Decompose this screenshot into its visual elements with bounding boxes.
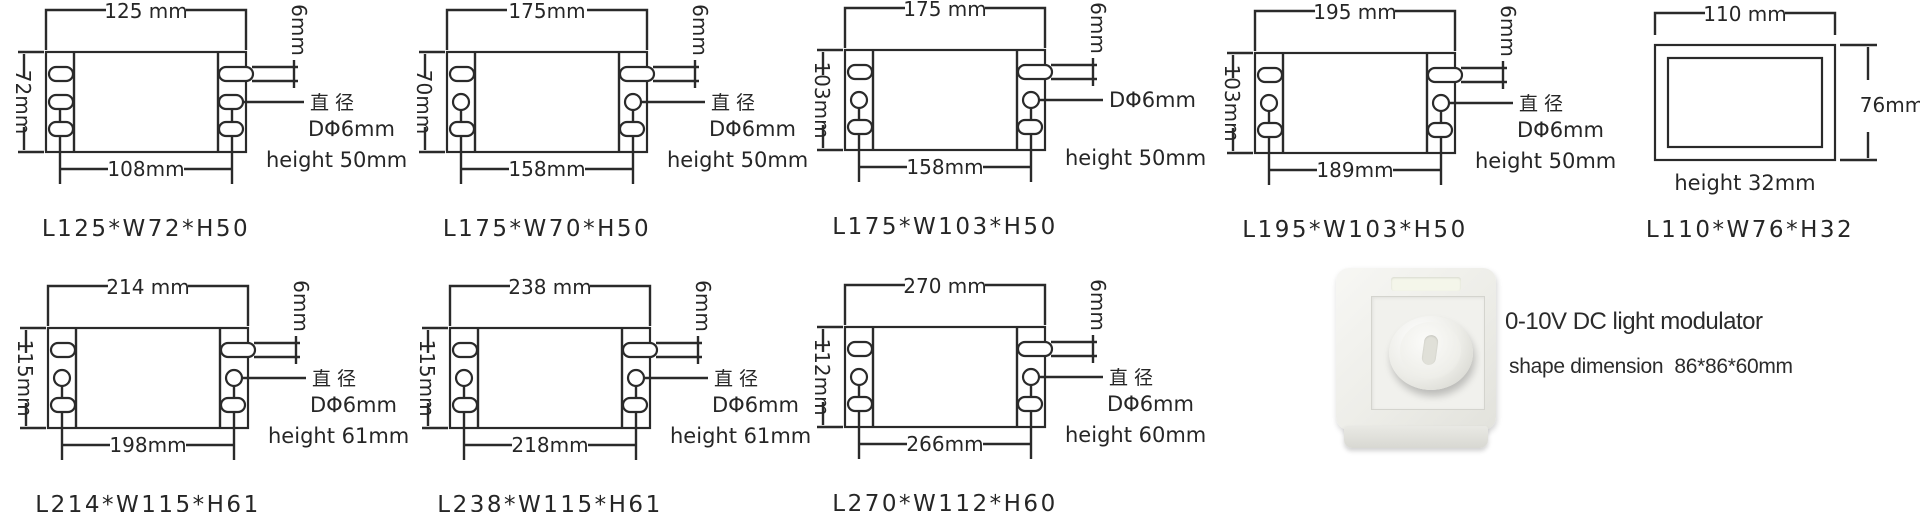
side-width-dimension: 70mm (412, 70, 436, 134)
mounting-slot (1018, 397, 1042, 411)
mounting-slot (453, 398, 477, 412)
mounting-slot-protruding (1018, 65, 1052, 79)
slot-offset-dimension: 6mm (287, 4, 311, 56)
side-width-dimension: 103mm (1220, 64, 1244, 141)
height-note: height 50mm (667, 148, 808, 172)
mount-span-dimension: 158mm (508, 157, 585, 181)
mounting-slot (49, 122, 73, 136)
mounting-slot (219, 95, 243, 109)
hole-diameter-value: DΦ6mm (1517, 118, 1604, 142)
dimension-diagram-l125: 125 mm 72mm 108mm 6mm 直径 DΦ6mm height 50… (0, 0, 416, 247)
top-width-dimension: 175mm (508, 0, 585, 23)
model-label: L238*W115*H61 (437, 492, 662, 512)
dimmer-knob (1389, 316, 1473, 390)
slot-offset-dimension: 6mm (691, 280, 715, 332)
mounting-slot (49, 95, 73, 109)
model-label: L175*W70*H50 (443, 216, 651, 242)
mount-span-dimension: 198mm (109, 433, 186, 457)
enclosure-outline (845, 50, 1045, 150)
mounting-hole (628, 370, 644, 386)
mounting-slot-protruding (219, 67, 253, 81)
mounting-slot (450, 122, 474, 136)
mounting-slot (620, 122, 644, 136)
mount-span-dimension: 158mm (906, 155, 983, 179)
slot-offset-dimension: 6mm (688, 4, 712, 56)
slot-offset-dimension: 6mm (1086, 279, 1110, 331)
top-width-dimension: 195 mm (1313, 0, 1397, 24)
mounting-hole (456, 370, 472, 386)
hole-diameter-value: DΦ6mm (712, 393, 799, 417)
model-label: L270*W112*H60 (832, 491, 1057, 512)
hole-diameter-value: DΦ6mm (310, 393, 397, 417)
mounting-slot (848, 120, 872, 134)
top-width-dimension: 110 mm (1703, 2, 1787, 26)
top-width-dimension: 238 mm (508, 275, 592, 299)
knob-pointer (1421, 334, 1439, 366)
top-width-dimension: 214 mm (106, 275, 190, 299)
slot-offset-dimension: 6mm (1496, 5, 1520, 57)
side-width-dimension: 72mm (11, 70, 35, 134)
product-title: 0-10V DC light modulator (1505, 308, 1762, 336)
enclosure-outline (450, 328, 650, 428)
mounting-hole (226, 370, 242, 386)
drawing-sheet: 125 mm 72mm 108mm 6mm 直径 DΦ6mm height 50… (0, 0, 1920, 512)
top-width-dimension: 175 mm (903, 0, 987, 21)
model-label: L214*W115*H61 (35, 492, 260, 512)
hole-diameter-value: DΦ6mm (1107, 392, 1194, 416)
mounting-slot (1018, 120, 1042, 134)
mounting-slot (49, 67, 73, 81)
mount-span-dimension: 189mm (1316, 158, 1393, 182)
mounting-hole (1433, 95, 1449, 111)
top-width-dimension: 270 mm (903, 274, 987, 298)
mounting-slot (221, 398, 245, 412)
mounting-slot (51, 398, 75, 412)
mounting-slot (450, 67, 474, 81)
hole-diameter-label: 直径 (1519, 93, 1569, 115)
product-subtitle: shape dimension 86*86*60mm (1509, 355, 1793, 379)
slot-offset-dimension: 6mm (289, 280, 313, 332)
mounting-slot (51, 343, 75, 357)
side-width-dimension: 76mm (1860, 93, 1920, 117)
mounting-slot (219, 122, 243, 136)
device-base (1344, 426, 1488, 448)
slot-offset-dimension: 6mm (1086, 2, 1110, 54)
height-note: height 50mm (1065, 146, 1206, 170)
dimension-diagram-l175w70: 175mm 70mm 158mm 6mm 直径 DΦ6mm height 50m… (397, 0, 817, 247)
dimension-diagram-l214: 214 mm 115mm 198mm 6mm 直径 DΦ6mm height 6… (0, 273, 418, 512)
mounting-slot (1258, 68, 1282, 82)
model-label: L195*W103*H50 (1242, 217, 1467, 243)
top-width-dimension: 125 mm (104, 0, 188, 23)
mounting-slot-protruding (1428, 68, 1462, 82)
hole-diameter-value: DΦ6mm (1109, 88, 1196, 112)
enclosure-outline (447, 52, 647, 152)
mounting-slot-protruding (221, 343, 255, 357)
mounting-hole (453, 94, 469, 110)
height-note: height 61mm (268, 424, 409, 448)
dimension-diagram-l270: 270 mm 112mm 266mm 6mm 直径 DΦ6mm height 6… (795, 272, 1215, 512)
mounting-slot (623, 398, 647, 412)
dimmer-photo (1336, 266, 1506, 462)
enclosure-inner-outline (1668, 58, 1822, 147)
knob-cap (1400, 322, 1461, 379)
mounting-hole (1023, 92, 1039, 108)
side-width-dimension: 103mm (810, 61, 834, 138)
mount-span-dimension: 108mm (107, 157, 184, 181)
height-note: height 60mm (1065, 423, 1206, 447)
dimension-diagram-l110: 110 mm 76mm height 32mm L110*W76*H32 (1600, 0, 1920, 250)
dimension-diagram-l195: 195 mm 103mm 189mm 6mm 直径 DΦ6mm height 5… (1205, 0, 1625, 248)
side-width-dimension: 115mm (13, 339, 37, 416)
indicator-window (1391, 277, 1461, 291)
hole-diameter-label: 直径 (310, 92, 360, 114)
mount-span-dimension: 266mm (906, 432, 983, 456)
mounting-hole (1023, 369, 1039, 385)
mounting-slot (1258, 123, 1282, 137)
enclosure-outline (1255, 53, 1455, 153)
mounting-slot (1428, 123, 1452, 137)
height-note: height 50mm (266, 148, 407, 172)
model-label: L125*W72*H50 (42, 216, 250, 242)
side-width-dimension: 115mm (415, 339, 439, 416)
mounting-slot-protruding (1018, 342, 1052, 356)
hole-diameter-value: DΦ6mm (308, 117, 395, 141)
faceplate (1336, 268, 1496, 430)
hole-diameter-label: 直径 (312, 368, 362, 390)
hole-diameter-label: 直径 (714, 368, 764, 390)
hole-diameter-label: 直径 (711, 92, 761, 114)
height-note: height 50mm (1475, 149, 1616, 173)
mounting-slot-protruding (620, 67, 654, 81)
mounting-slot-protruding (623, 343, 657, 357)
model-label: L175*W103*H50 (832, 214, 1057, 240)
enclosure-outline (46, 52, 246, 152)
model-label: L110*W76*H32 (1646, 217, 1854, 243)
side-width-dimension: 112mm (810, 338, 834, 415)
enclosure-outline (48, 328, 248, 428)
hole-diameter-label: 直径 (1109, 367, 1159, 389)
mounting-hole (625, 94, 641, 110)
dimension-diagram-l238: 238 mm 115mm 218mm 6mm 直径 DΦ6mm height 6… (400, 273, 820, 512)
mounting-slot (848, 397, 872, 411)
mounting-hole (851, 92, 867, 108)
dimension-diagram-l175w103: 175 mm 103mm 158mm 6mm DΦ6mm height 50mm… (795, 0, 1215, 245)
height-note: height 32mm (1674, 171, 1815, 195)
mounting-hole (851, 369, 867, 385)
mounting-hole (54, 370, 70, 386)
mounting-slot (848, 342, 872, 356)
enclosure-outline (845, 327, 1045, 427)
mounting-slot (848, 65, 872, 79)
mounting-hole (1261, 95, 1277, 111)
mount-span-dimension: 218mm (511, 433, 588, 457)
height-note: height 61mm (670, 424, 811, 448)
hole-diameter-value: DΦ6mm (709, 117, 796, 141)
mounting-slot (453, 343, 477, 357)
